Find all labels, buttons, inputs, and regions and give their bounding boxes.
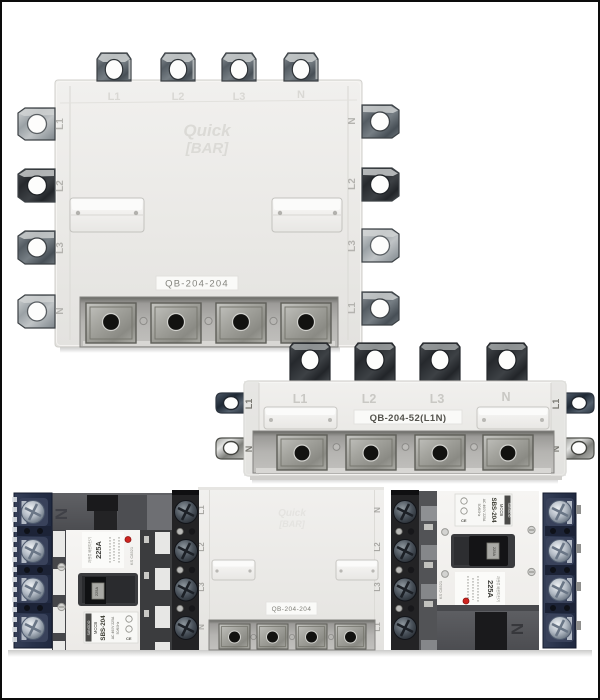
svg-text:L3: L3 <box>55 242 66 254</box>
svg-text:과전류 배선차단기: 과전류 배선차단기 <box>87 537 92 563</box>
svg-text:L2: L2 <box>373 542 382 552</box>
svg-text:L3: L3 <box>373 582 382 592</box>
svg-text:L3: L3 <box>347 240 358 252</box>
svg-text:과전류 배선차단기: 과전류 배선차단기 <box>496 576 501 602</box>
svg-text:Quick: Quick <box>183 121 232 140</box>
svg-text:QB-204-204: QB-204-204 <box>165 279 229 290</box>
svg-text:N: N <box>297 89 305 101</box>
svg-text:AC 460V 225A: AC 460V 225A <box>111 616 115 639</box>
svg-text:AC 460V 225A: AC 460V 225A <box>482 499 486 522</box>
svg-text:N: N <box>55 307 66 314</box>
svg-text:N: N <box>508 623 527 635</box>
svg-text:L3: L3 <box>233 91 246 103</box>
svg-text:225A: 225A <box>492 547 497 557</box>
svg-text:L2: L2 <box>172 91 185 103</box>
svg-text:L1: L1 <box>293 392 308 406</box>
svg-text:[BAR]: [BAR] <box>278 519 305 529</box>
svg-text:SANGDO: SANGDO <box>507 503 511 518</box>
svg-text:50/60Hz: 50/60Hz <box>116 621 120 634</box>
svg-text:KS C8321: KS C8321 <box>129 546 134 565</box>
svg-text:50/60Hz: 50/60Hz <box>477 504 481 517</box>
svg-text:SBS-204: SBS-204 <box>490 497 497 523</box>
svg-text:QB-204-204: QB-204-204 <box>272 606 312 613</box>
svg-text:SBS-204: SBS-204 <box>100 615 107 641</box>
svg-text:N: N <box>52 508 71 520</box>
svg-text:225A: 225A <box>94 541 103 559</box>
svg-text:N: N <box>347 117 358 124</box>
svg-text:MCCB: MCCB <box>499 504 504 517</box>
svg-text:QB-204-52(L1N): QB-204-52(L1N) <box>370 413 447 424</box>
svg-text:225A: 225A <box>486 580 495 598</box>
svg-text:L1: L1 <box>108 91 121 103</box>
svg-text:225A: 225A <box>94 586 99 596</box>
svg-text:L3: L3 <box>430 392 445 406</box>
svg-text:L1: L1 <box>244 399 254 410</box>
svg-text:L2: L2 <box>55 180 66 192</box>
svg-text:L1: L1 <box>551 399 561 410</box>
svg-text:SANGDO: SANGDO <box>87 620 91 635</box>
svg-text:KS C8321: KS C8321 <box>438 580 443 599</box>
svg-text:[BAR]: [BAR] <box>185 140 229 157</box>
svg-text:N: N <box>501 390 510 404</box>
svg-text:CE: CE <box>461 518 467 523</box>
svg-text:MCCB: MCCB <box>93 622 98 635</box>
svg-text:L2: L2 <box>362 392 377 406</box>
svg-text:CE: CE <box>126 636 132 641</box>
svg-text:N: N <box>373 507 382 513</box>
svg-text:L1: L1 <box>347 302 358 314</box>
svg-text:Quick: Quick <box>278 508 306 519</box>
svg-text:L2: L2 <box>347 178 358 190</box>
svg-text:L1: L1 <box>55 118 66 130</box>
